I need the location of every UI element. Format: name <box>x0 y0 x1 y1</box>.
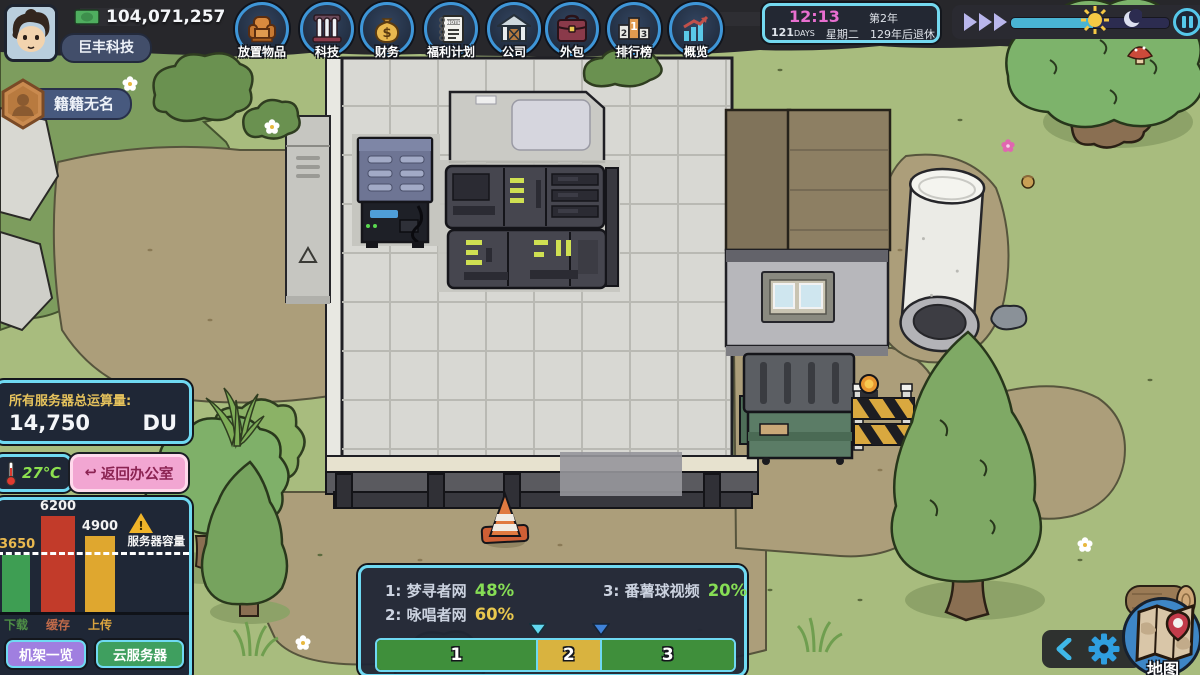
bar-download <box>2 555 30 612</box>
return-arrow-icon: ↩ <box>85 465 97 481</box>
tab-segment-3[interactable]: 3 <box>600 640 734 670</box>
stats-title: 所有服务器总运算量: <box>9 390 131 409</box>
bar-value-upload: 4900 <box>79 519 121 534</box>
capacity-chart-panel: 3650 6200 4900 ! 服务器容量 下载 缓存 上传 机架一览 云服务… <box>0 497 192 675</box>
speed-bar <box>952 5 1200 39</box>
ac-unit <box>450 92 604 167</box>
capacity-value: 3650 <box>0 537 35 552</box>
warning-icon: ! <box>129 513 153 533</box>
minimap-label: 地图 <box>1147 656 1179 675</box>
game-screen: 104,071,257 巨丰科技 籍籍无名 放置物品 科技 $ 财务 NOTE <box>0 0 1200 675</box>
toolbar-place-items[interactable]: 放置物品 <box>233 2 291 60</box>
server-rack-row1 <box>446 166 604 228</box>
bar-value-cache: 6200 <box>37 499 79 514</box>
house-icon <box>497 13 531 45</box>
toolbar-label: 公司 <box>485 43 543 60</box>
map-icon <box>1131 602 1199 664</box>
toolbar-company[interactable]: 公司 <box>485 2 543 60</box>
back-to-office-button[interactable]: ↩ 返回办公室 <box>70 454 188 492</box>
podium-2: 2 <box>621 29 627 39</box>
pause-button[interactable] <box>1173 8 1200 36</box>
server-cabinet <box>352 134 440 248</box>
bar-chart: 3650 6200 4900 ! 服务器容量 <box>0 500 189 615</box>
minimap-button[interactable]: 地图 <box>1122 597 1200 675</box>
company-name: 巨丰科技 <box>60 33 152 63</box>
allocation-tabbar: 1 2 3 <box>375 638 736 672</box>
armchair-icon <box>246 13 278 45</box>
toolbar-finance[interactable]: $ 财务 <box>358 2 416 60</box>
clock-days: 121DAYS <box>771 26 815 42</box>
neighbor-roof <box>726 110 890 250</box>
acorn <box>1022 176 1034 188</box>
bar-cache <box>41 516 75 612</box>
sun-icon <box>1080 5 1110 35</box>
clock-panel: 12:13 第2年 121DAYS 星期二 129年后退休 <box>762 3 940 43</box>
toolbar-tech[interactable]: 科技 <box>298 2 356 60</box>
clock-year: 第2年 <box>869 10 898 26</box>
back-chevron-icon[interactable] <box>1056 638 1072 660</box>
stats-unit: DU <box>143 411 177 435</box>
avatar-face <box>7 7 55 59</box>
tab-segment-1[interactable]: 1 <box>377 640 536 670</box>
site-1: 1: 梦寻者网48% <box>385 580 514 601</box>
toolbar-label: 概览 <box>667 43 725 60</box>
speed-button-1[interactable] <box>964 13 977 35</box>
toolbar-label: 外包 <box>543 43 601 60</box>
rock <box>991 306 1026 330</box>
speed-button-2[interactable] <box>979 13 992 35</box>
podium-3: 3 <box>641 30 647 40</box>
thermometer-icon <box>4 460 18 486</box>
temperature-chip: 27℃ <box>0 454 72 492</box>
stats-value: 14,750 <box>9 411 90 435</box>
stats-panel: 所有服务器总运算量: 14,750 DU <box>0 380 192 444</box>
speed-button-3[interactable] <box>994 13 1007 35</box>
slider-marker-blue[interactable] <box>592 623 610 636</box>
podium-icon: 2 1 3 <box>617 13 651 45</box>
clock-retirement: 129年后退休 <box>870 26 935 42</box>
toolbar-label: 福利计划 <box>422 43 480 60</box>
note-text: NOTE <box>447 20 461 26</box>
moon-icon <box>1122 9 1142 29</box>
temperature-value: 27℃ <box>22 464 61 482</box>
rank-badge-icon[interactable] <box>0 78 46 130</box>
avatar[interactable] <box>4 4 58 62</box>
site-3: 3: 番薯球视频20% <box>603 580 747 601</box>
concrete-pipe <box>899 167 990 354</box>
chart-icon <box>680 13 712 45</box>
site-2: 2: 咏唱者网60% <box>385 604 514 625</box>
moneybag-icon: $ <box>371 13 403 45</box>
gear-icon[interactable] <box>1088 633 1120 665</box>
toolbar-label: 科技 <box>298 43 356 60</box>
money-value: 104,071,257 <box>106 7 225 27</box>
toolbar-label: 财务 <box>358 43 416 60</box>
clock-time: 12:13 <box>789 7 840 26</box>
toolbar-welfare[interactable]: NOTE 福利计划 <box>422 2 480 60</box>
toolbar-leaderboard[interactable]: 2 1 3 排行榜 <box>605 2 663 60</box>
neighbor-building <box>726 250 888 356</box>
toolbar-overview[interactable]: 概览 <box>667 2 725 60</box>
dumpster <box>740 354 854 465</box>
rack-overview-button[interactable]: 机架一览 <box>6 640 86 668</box>
testtubes-icon <box>311 13 343 45</box>
money-display: 104,071,257 <box>74 7 225 27</box>
capacity-line <box>0 552 189 555</box>
slider-marker-cyan[interactable] <box>529 623 547 636</box>
cloud-server-button[interactable]: 云服务器 <box>96 640 184 668</box>
briefcase-icon <box>555 13 589 45</box>
traffic-panel: 1: 梦寻者网48% 3: 番薯球视频20% 2: 咏唱者网60% 1 2 3 <box>358 565 747 675</box>
tab-segment-2[interactable]: 2 <box>536 640 600 670</box>
cash-icon <box>74 9 100 25</box>
toolbar-label: 放置物品 <box>233 43 291 60</box>
capacity-label: 服务器容量 <box>128 533 186 549</box>
bar-upload <box>85 536 115 612</box>
utility-box <box>286 116 330 304</box>
clock-weekday: 星期二 <box>826 26 859 42</box>
podium-1: 1 <box>630 20 638 33</box>
toolbar-label: 排行榜 <box>605 43 663 60</box>
dollar-glyph: $ <box>382 26 391 41</box>
note-icon: NOTE <box>435 13 467 45</box>
toolbar-outsourcing[interactable]: 外包 <box>543 2 601 60</box>
